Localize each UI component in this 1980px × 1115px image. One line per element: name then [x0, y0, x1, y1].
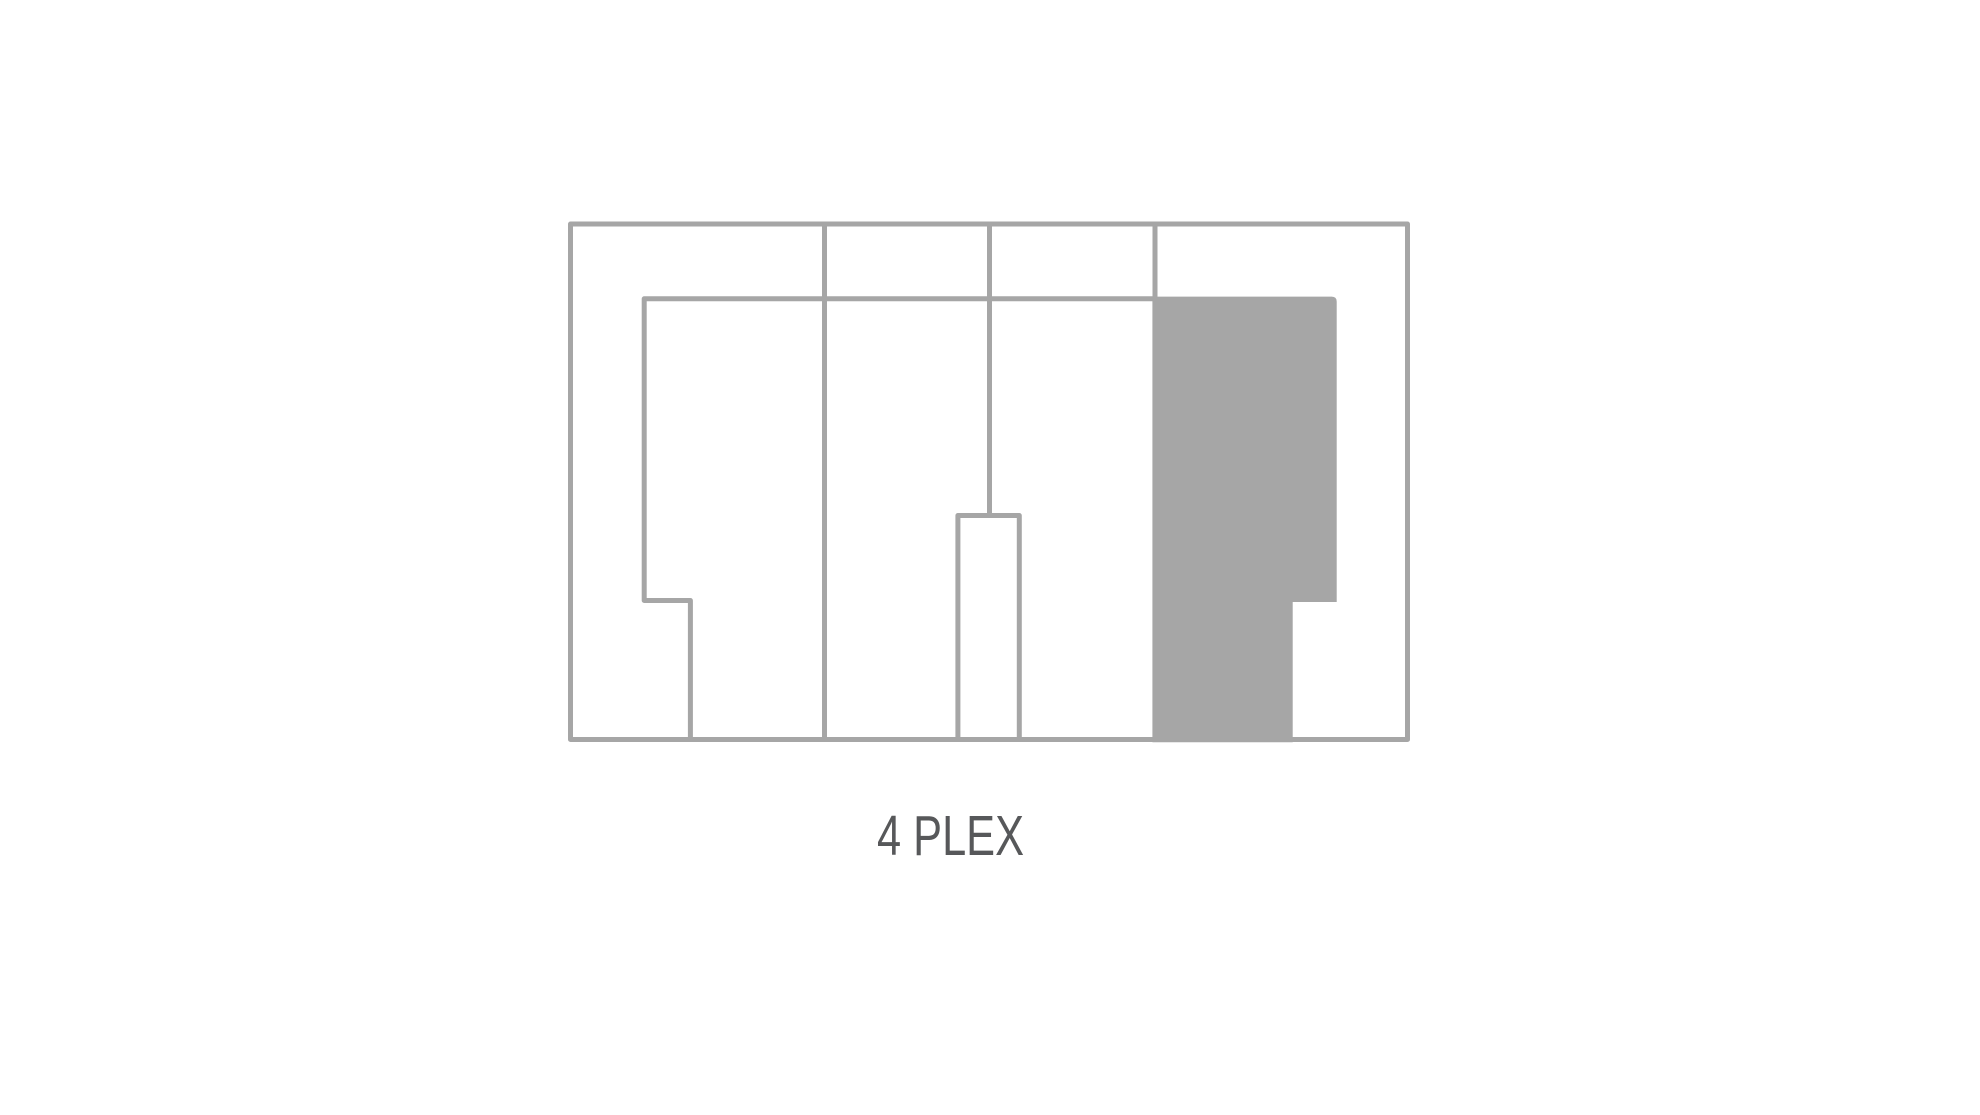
svg-text:4 PLEX: 4 PLEX [877, 804, 1024, 868]
